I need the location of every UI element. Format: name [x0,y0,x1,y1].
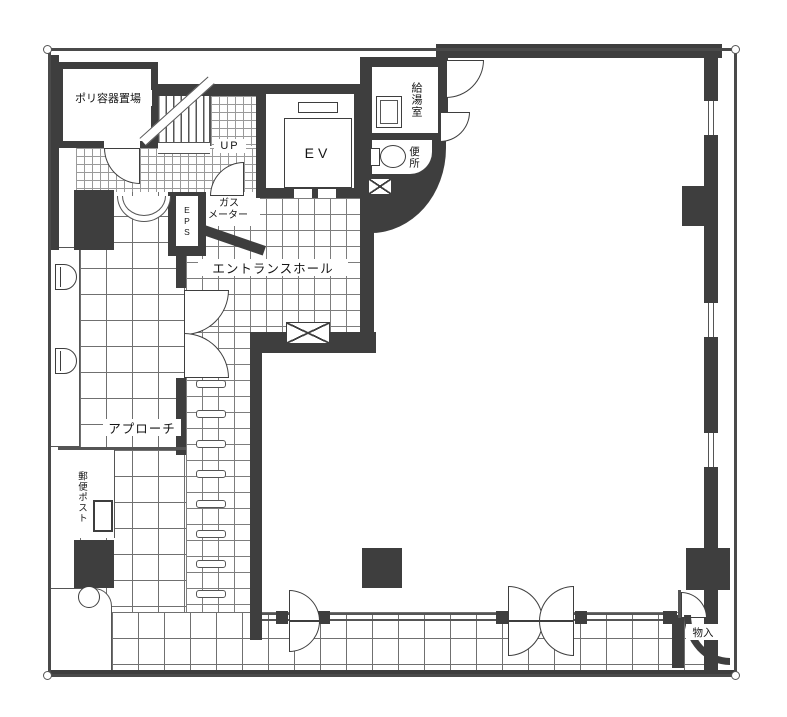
drain-slat [196,470,226,478]
corner-marker [43,45,52,54]
toilet-tank [370,148,380,166]
mail-post-box [93,500,113,532]
corner-marker [731,45,740,54]
gas-meter-label-line2: メーター [200,207,256,219]
elevator-door-slit [294,189,312,198]
up-text: UP [220,140,239,152]
corner-marker [731,671,740,680]
storefront-mullion [276,611,288,624]
eps-label: EPS [180,199,194,243]
eps-text: EPS [182,205,192,238]
duct-shaft-symbol [368,178,392,195]
mail-post-label: 郵便ポスト [73,460,89,534]
elevator-door-slit [318,189,336,198]
drain-slat [196,500,226,508]
drain-slat [196,380,226,388]
drain-slat [196,530,226,538]
entrance-hall-text: エントランスホール [212,258,333,277]
drain-slat [196,440,226,448]
storefront-mullion [496,611,508,624]
drain-slat [196,410,226,418]
approach-text: アプローチ [108,418,176,437]
toilet-label: 便所 [407,141,422,173]
entrance-hall-label: エントランスホール [198,259,348,276]
storefront-mullion [663,611,677,624]
kitchenette-text: 給湯室 [408,82,424,118]
up-label: UP [214,139,246,153]
mail-post-text: 郵便ポスト [74,471,88,524]
floor-plan: ポリ容器置場 UP EV 給湯室 便所 EPS ガス メーター エントランスホー… [0,0,787,717]
toilet-bowl-icon [380,145,406,168]
corner-marker [43,671,52,680]
poly-storage-text: ポリ容器置場 [75,90,141,106]
stair-landing-strip [158,142,210,154]
elevator-label: EV [292,144,344,162]
wall-light-bar [60,267,61,287]
kitchenette-sink-inner [380,100,398,124]
kitchenette-label: 給湯室 [408,70,424,130]
hall-window-symbol [286,322,330,344]
closet-door-leaf [678,590,681,618]
drain-slat [196,590,226,598]
wall-light-bar [60,351,61,371]
elevator-counterweight [298,102,338,113]
gas-text-2: メーター [208,206,248,221]
poly-storage-label: ポリ容器置場 [64,90,152,106]
storefront-mullion [575,611,587,624]
toilet-text: 便所 [407,146,422,169]
storage-label: 物入 [686,624,720,640]
drain-slat [196,560,226,568]
storage-text: 物入 [693,625,714,640]
corner-planter-light [78,586,100,608]
approach-label: アプローチ [103,419,181,436]
elevator-text: EV [305,145,332,161]
